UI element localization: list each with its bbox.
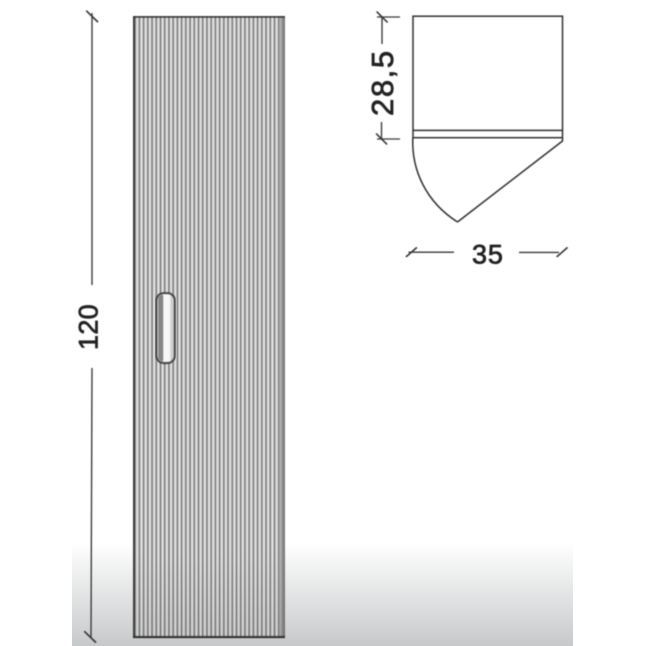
svg-text:35: 35: [472, 240, 504, 270]
svg-text:120: 120: [74, 304, 104, 350]
svg-text:28,5: 28,5: [365, 49, 400, 116]
